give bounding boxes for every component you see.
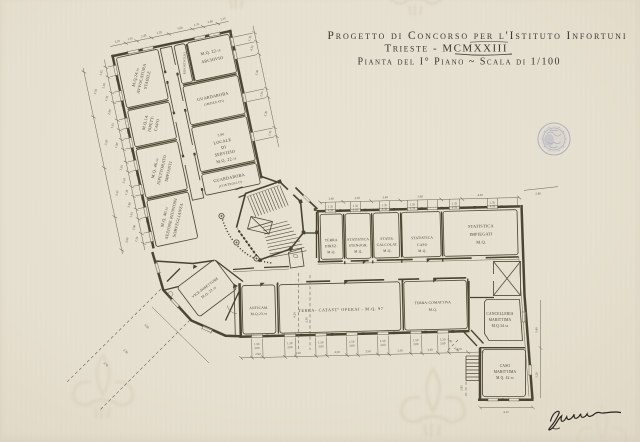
svg-text:Trieste - MCMXXIII: Trieste - MCMXXIII — [385, 43, 508, 55]
svg-text:4.15: 4.15 — [503, 410, 509, 414]
svg-text:5.20: 5.20 — [535, 372, 539, 378]
svg-text:ARCHIVIO: ARCHIVIO — [201, 55, 224, 65]
svg-text:4.20: 4.20 — [334, 350, 340, 354]
svg-text:M.Q.: M.Q. — [418, 249, 426, 253]
svg-text:2.80: 2.80 — [124, 237, 129, 244]
svg-text:TERRA- CATASTº OPERAI - M.Q. 9: TERRA- CATASTº OPERAI - M.Q. 97 — [298, 306, 383, 313]
svg-text:1.35: 1.35 — [193, 22, 200, 27]
svg-text:M.Q. 42.50: M.Q. 42.50 — [496, 376, 514, 380]
svg-text:DI: DI — [221, 144, 227, 150]
svg-text:M.Q.: M.Q. — [327, 250, 335, 254]
svg-text:3.00: 3.00 — [380, 343, 386, 347]
svg-text:1.35: 1.35 — [267, 130, 272, 137]
svg-text:4.35: 4.35 — [410, 206, 416, 210]
svg-text:5.00: 5.00 — [143, 323, 150, 330]
svg-text:CANCELLERIA: CANCELLERIA — [486, 312, 513, 316]
svg-text:3.00: 3.00 — [287, 345, 293, 349]
svg-text:MARITTIMA: MARITTIMA — [489, 318, 512, 322]
svg-text:4.35: 4.35 — [490, 204, 496, 208]
svg-text:M.Q.: M.Q. — [476, 239, 486, 244]
svg-text:1.35: 1.35 — [124, 189, 129, 196]
svg-text:1.35: 1.35 — [98, 69, 103, 76]
svg-text:3.00: 3.00 — [254, 346, 260, 350]
svg-text:2.50: 2.50 — [101, 82, 106, 89]
svg-text:ANTICAM.: ANTICAM. — [249, 306, 268, 310]
svg-text:3.00: 3.00 — [349, 344, 355, 348]
svg-text:3.20: 3.20 — [104, 139, 109, 146]
svg-text:3.40: 3.40 — [328, 197, 334, 201]
svg-text:3.30: 3.30 — [263, 110, 268, 117]
svg-text:CASO: CASO — [500, 364, 511, 368]
svg-text:CAPO: CAPO — [417, 243, 428, 247]
svg-text:3.90: 3.90 — [217, 132, 225, 137]
svg-text:M.Q.: M.Q. — [354, 249, 362, 253]
svg-text:1.35: 1.35 — [259, 91, 264, 98]
svg-text:2.80: 2.80 — [107, 109, 112, 116]
svg-text:M.Q.34.50: M.Q.34.50 — [492, 324, 509, 328]
svg-text:2.90: 2.90 — [127, 201, 132, 208]
svg-text:TERRA: TERRA — [325, 238, 338, 242]
svg-text:2.40: 2.40 — [141, 33, 148, 38]
svg-text:CALCOLAT.: CALCOLAT. — [377, 243, 398, 248]
svg-text:3.30: 3.30 — [354, 196, 360, 200]
svg-text:1.35: 1.35 — [119, 164, 124, 171]
svg-text:3.50: 3.50 — [295, 351, 301, 355]
svg-text:2.20: 2.20 — [122, 348, 129, 355]
svg-text:4.20: 4.20 — [293, 312, 297, 318]
svg-text:1.40: 1.40 — [446, 337, 453, 344]
svg-text:STATISTICA: STATISTICA — [468, 223, 494, 229]
svg-text:4.35: 4.35 — [353, 207, 359, 211]
svg-text:3.00: 3.00 — [413, 342, 419, 346]
svg-text:3.60: 3.60 — [417, 194, 423, 198]
svg-text:4.35: 4.35 — [328, 208, 334, 212]
svg-text:1.35: 1.35 — [129, 211, 134, 218]
svg-text:3.10: 3.10 — [121, 177, 126, 184]
svg-text:M.Q.: M.Q. — [429, 308, 437, 312]
svg-text:STATISTICA: STATISTICA — [411, 236, 433, 241]
svg-text:4.35: 4.35 — [249, 45, 254, 52]
svg-text:2.40: 2.40 — [207, 19, 214, 24]
svg-text:M.Q.23.50: M.Q.23.50 — [251, 312, 268, 316]
svg-text:1.35: 1.35 — [104, 95, 109, 102]
svg-text:M.Q.: M.Q. — [383, 249, 391, 253]
svg-text:RIPOSTIGLIO: RIPOSTIGLIO — [182, 52, 186, 75]
svg-text:STATIS.: STATIS. — [380, 237, 394, 241]
svg-text:2.80: 2.80 — [535, 192, 541, 196]
svg-text:1.90: 1.90 — [114, 142, 119, 149]
svg-text:1.35: 1.35 — [220, 16, 227, 21]
svg-text:MARITTIMA: MARITTIMA — [494, 370, 517, 374]
svg-text:DIREZ-: DIREZ- — [325, 244, 339, 248]
svg-text:3.40: 3.40 — [382, 195, 388, 199]
svg-text:3.00: 3.00 — [440, 341, 446, 345]
svg-text:3.60: 3.60 — [177, 25, 184, 30]
svg-text:3.30: 3.30 — [397, 348, 403, 352]
svg-text:5.40: 5.40 — [535, 327, 539, 333]
svg-text:2.85: 2.85 — [460, 385, 464, 391]
svg-text:Pianta del I° Piano ~ Scala di: Pianta del I° Piano ~ Scala di 1/100 — [358, 57, 561, 68]
svg-text:4.50: 4.50 — [477, 193, 483, 197]
svg-text:3.30: 3.30 — [254, 69, 259, 76]
svg-text:3.00: 3.00 — [318, 344, 324, 348]
svg-text:1.35: 1.35 — [134, 236, 139, 243]
svg-text:2.20: 2.20 — [156, 30, 163, 35]
svg-text:2.60: 2.60 — [131, 224, 136, 231]
svg-text:3.50: 3.50 — [365, 349, 371, 353]
svg-text:4.35: 4.35 — [382, 207, 388, 211]
svg-text:IMPIEGATI: IMPIEGATI — [469, 231, 493, 237]
svg-text:1.35: 1.35 — [247, 35, 252, 42]
svg-text:Progetto di Concorso per l'Ist: Progetto di Concorso per l'Istituto Info… — [328, 30, 627, 42]
svg-text:4.35: 4.35 — [452, 205, 458, 209]
svg-text:1.35: 1.35 — [110, 122, 115, 129]
svg-text:3.55: 3.55 — [93, 88, 98, 95]
svg-text:STATISTICA: STATISTICA — [347, 237, 369, 242]
svg-text:1.35: 1.35 — [127, 36, 134, 41]
svg-text:TERRA-COMATTIVA: TERRA-COMATTIVA — [414, 300, 451, 305]
svg-text:3.10: 3.10 — [114, 190, 119, 197]
svg-text:2.90: 2.90 — [255, 352, 261, 356]
svg-text:2.10: 2.10 — [114, 39, 121, 44]
svg-text:2.30: 2.30 — [305, 317, 309, 323]
svg-text:STENOGR.: STENOGR. — [349, 243, 368, 247]
svg-text:3.40: 3.40 — [427, 348, 433, 352]
